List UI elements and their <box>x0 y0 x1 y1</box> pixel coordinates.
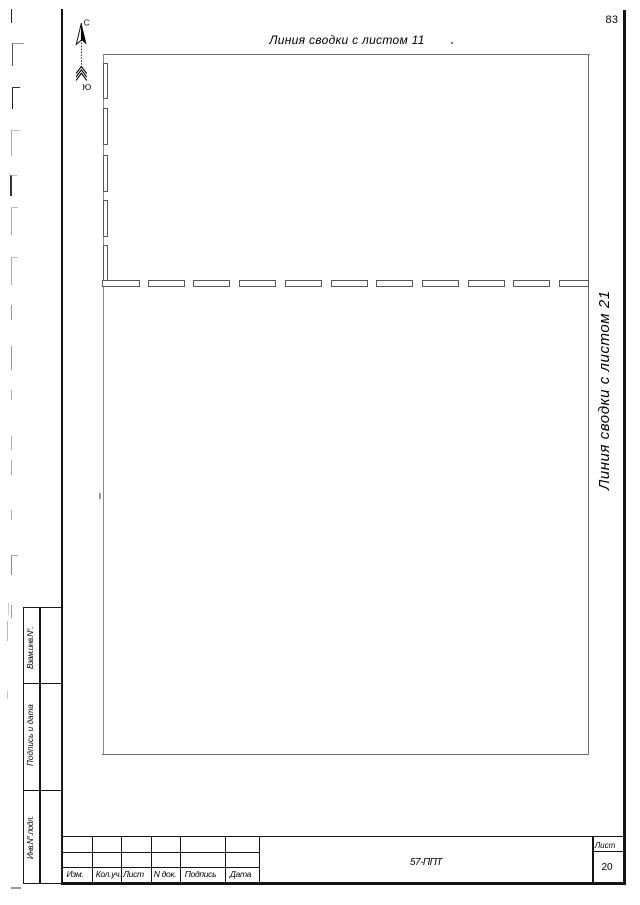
svg-text:Ю: Ю <box>83 82 92 92</box>
svg-text:С: С <box>84 18 90 27</box>
